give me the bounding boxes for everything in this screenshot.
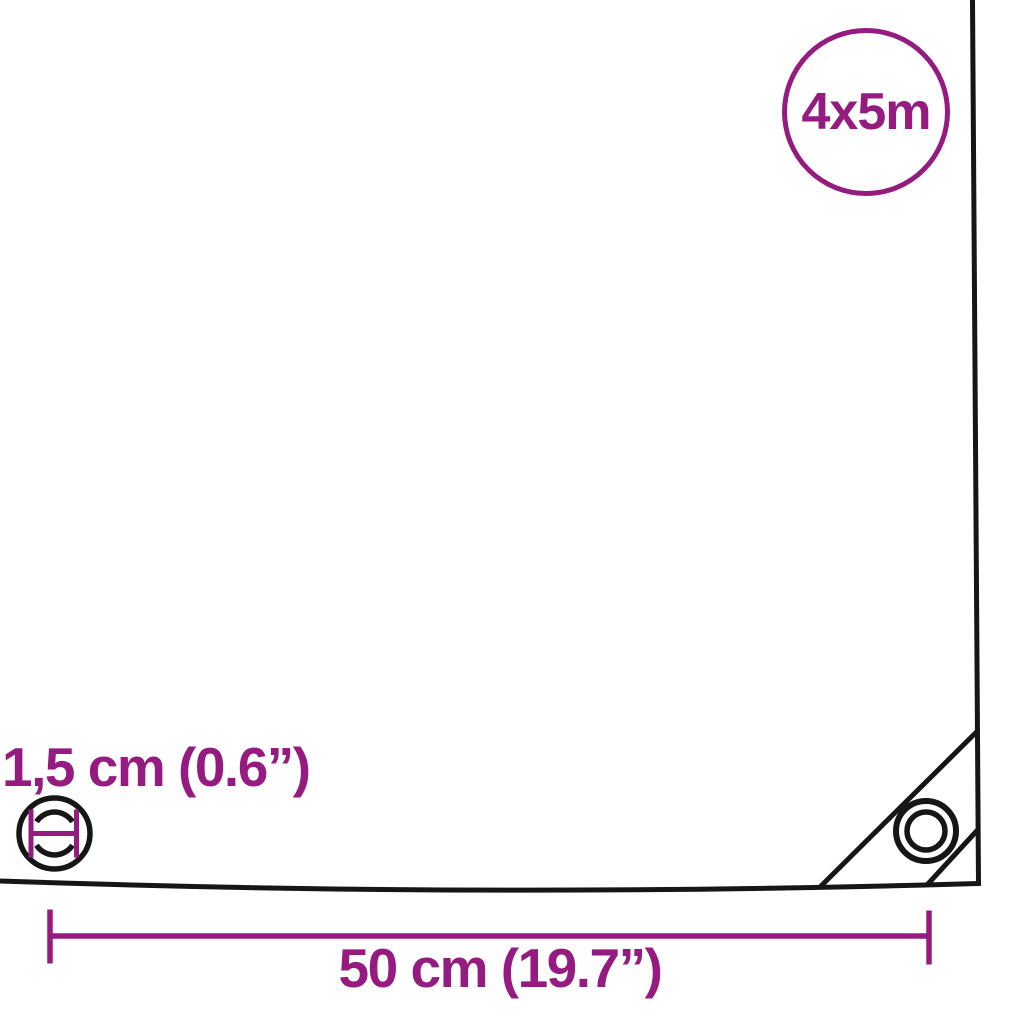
product-dimension-diagram: 4x5m 1,5 cm (0.6”) 50 cm (19.7”) bbox=[0, 0, 1024, 1024]
corner-grommet-inner-ring bbox=[907, 812, 945, 850]
grommet-diameter-label: 1,5 cm (0.6”) bbox=[2, 740, 310, 795]
size-badge-label: 4x5m bbox=[802, 86, 931, 138]
grommet-inner-ring-bottom-arc bbox=[37, 845, 73, 855]
corner-grommet-icon bbox=[896, 801, 956, 861]
grommet-spacing-label: 50 cm (19.7”) bbox=[190, 941, 810, 996]
grommet-diameter-icon bbox=[19, 798, 90, 869]
corner-fold-line bbox=[821, 731, 978, 887]
size-badge: 4x5m bbox=[784, 30, 948, 194]
grommet-inner-ring-top-arc bbox=[37, 812, 73, 822]
